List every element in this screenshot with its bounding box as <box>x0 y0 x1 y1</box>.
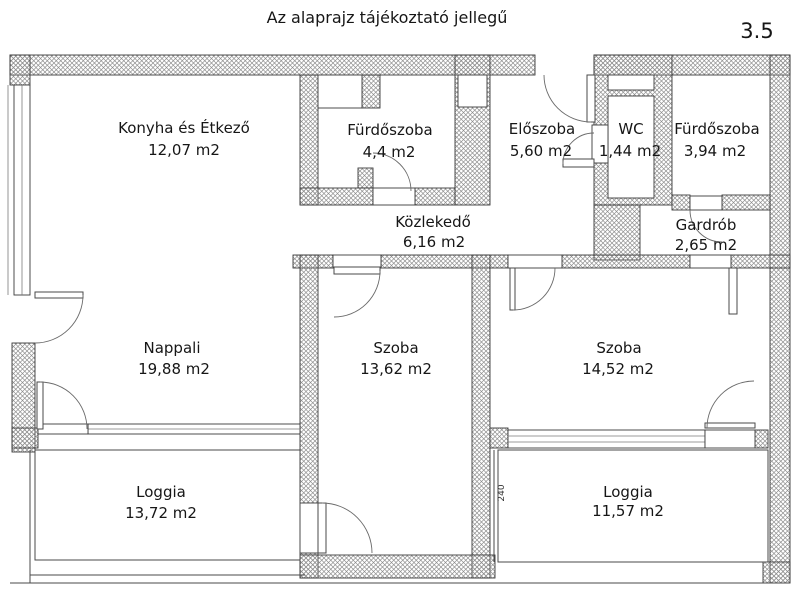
door-szoba2 <box>510 268 555 310</box>
plan-number: 3.5 <box>740 19 773 43</box>
door-gardrob-szoba2 <box>729 268 737 314</box>
threshold-gardrob-door <box>690 255 731 268</box>
room-area-furdoszoba1: 4,4 m2 <box>363 143 416 161</box>
wall-bath1-stub <box>358 168 373 188</box>
floor-plan-page: Az alaprajz tájékoztató jellegű 3.5 <box>0 0 800 600</box>
door-nappali-loggia-leaf <box>37 382 43 429</box>
room-area-gardrob: 2,65 m2 <box>675 236 737 254</box>
threshold-szoba2-loggia-door <box>705 430 755 448</box>
wall-bath1-shaft-strip <box>362 75 380 108</box>
room-area-loggia1: 13,72 m2 <box>125 504 197 522</box>
wall-mid-left-upper <box>300 255 318 503</box>
wall-left-corner <box>10 55 30 85</box>
room-name-nappali: Nappali <box>144 339 201 357</box>
room-label-kozlekedo: Közlekedő 6,16 m2 <box>395 213 471 251</box>
wall-mid-right <box>472 255 490 578</box>
room-area-nappali: 19,88 m2 <box>138 360 210 378</box>
room-area-eloszoba: 5,60 m2 <box>510 142 572 160</box>
room-area-szoba2: 14,52 m2 <box>582 360 654 378</box>
wall-main-h4 <box>731 255 790 268</box>
door-wc-leaf <box>563 159 594 167</box>
door-kitchen-balcony <box>35 292 83 343</box>
door-szoba2-leaf <box>510 268 515 310</box>
door-entrance <box>544 75 595 122</box>
room-label-loggia2: Loggia 11,57 m2 <box>592 483 664 520</box>
room-label-loggia1: Loggia 13,72 m2 <box>125 483 197 522</box>
duct-shaft-bath1 <box>318 75 362 108</box>
wall-bottom-right-corner <box>763 562 790 583</box>
room-label-furdoszoba1: Fürdőszoba 4,4 m2 <box>347 121 433 161</box>
threshold-szoba2-door <box>508 255 562 268</box>
room-label-eloszoba: Előszoba 5,60 m2 <box>509 120 575 160</box>
door-szoba1-leaf <box>334 267 380 274</box>
door-nappali-loggia-arc <box>40 382 87 429</box>
room-area-loggia2: 11,57 m2 <box>592 502 664 520</box>
wall-kitchen-bath <box>300 75 318 205</box>
floor-plan-drawing: Az alaprajz tájékoztató jellegű 3.5 <box>0 0 800 600</box>
door-szoba1-loggia <box>318 503 372 553</box>
room-area-konyha: 12,07 m2 <box>148 141 220 159</box>
room-area-kozlekedo: 6,16 m2 <box>403 233 465 251</box>
window-szoba2-loggia <box>508 430 705 448</box>
dimension-label-240: 240 <box>497 484 507 501</box>
room-name-szoba2: Szoba <box>596 339 641 357</box>
door-entrance-leaf <box>587 75 595 122</box>
room-label-szoba1: Szoba 13,62 m2 <box>360 339 432 378</box>
wall-szoba2-pier-left <box>490 428 508 448</box>
door-gardrob-leaf <box>729 268 737 314</box>
door-szoba2-arc <box>513 268 555 310</box>
room-name-kozlekedo: Közlekedő <box>395 213 471 231</box>
room-name-loggia2: Loggia <box>603 483 653 501</box>
wall-bath1-bottom-left <box>300 188 373 205</box>
door-szoba1-arc <box>334 271 380 317</box>
door-szoba2-loggia-arc <box>707 381 754 428</box>
door-kitchen-balcony-arc <box>35 295 83 343</box>
threshold-szoba1-door <box>333 255 381 268</box>
wall-right <box>770 55 790 583</box>
room-name-szoba1: Szoba <box>373 339 418 357</box>
door-szoba2-loggia-leaf <box>705 423 755 428</box>
threshold-nappali-loggia-door <box>38 424 88 434</box>
wall-bath1-bottom-right <box>415 188 455 205</box>
threshold-bath2-door <box>690 196 722 210</box>
door-szoba1-loggia-leaf <box>318 503 326 553</box>
wall-main-h3 <box>562 255 690 268</box>
wall-below-wc <box>594 205 640 260</box>
page-title: Az alaprajz tájékoztató jellegű <box>267 8 508 27</box>
room-name-eloszoba: Előszoba <box>509 120 575 138</box>
wall-mid-bottom <box>300 555 495 578</box>
door-nappali-loggia <box>37 382 87 429</box>
room-name-furdoszoba1: Fürdőszoba <box>347 121 433 139</box>
duct-shaft-hall <box>458 75 487 107</box>
wall-bath2-bottom-right <box>722 195 770 210</box>
door-entrance-arc <box>544 75 591 122</box>
door-szoba2-loggia <box>705 381 755 428</box>
room-label-gardrob: Gardrób 2,65 m2 <box>675 216 737 254</box>
room-label-konyha: Konyha és Étkező 12,07 m2 <box>118 118 250 159</box>
duct-shaft-wc <box>608 75 654 90</box>
room-name-konyha: Konyha és Étkező <box>118 118 250 137</box>
room-name-wc: WC <box>618 120 643 138</box>
room-label-furdoszoba2: Fürdőszoba 3,94 m2 <box>674 120 760 160</box>
room-area-wc: 1,44 m2 <box>599 142 661 160</box>
room-label-nappali: Nappali 19,88 m2 <box>138 339 210 378</box>
door-kitchen-balcony-leaf <box>35 292 83 298</box>
door-szoba1-loggia-arc <box>322 503 372 553</box>
room-name-loggia1: Loggia <box>136 483 186 501</box>
room-label-szoba2: Szoba 14,52 m2 <box>582 339 654 378</box>
wall-nappali-pier <box>12 428 38 448</box>
room-area-furdoszoba2: 3,94 m2 <box>684 142 746 160</box>
wall-szoba2-pier-right <box>755 430 768 448</box>
threshold-bath1-door <box>373 188 415 205</box>
room-name-gardrob: Gardrób <box>676 216 737 234</box>
wall-bath2-bottom-left <box>672 195 690 210</box>
room-area-szoba1: 13,62 m2 <box>360 360 432 378</box>
door-szoba1 <box>334 267 380 317</box>
room-name-furdoszoba2: Fürdőszoba <box>674 120 760 138</box>
